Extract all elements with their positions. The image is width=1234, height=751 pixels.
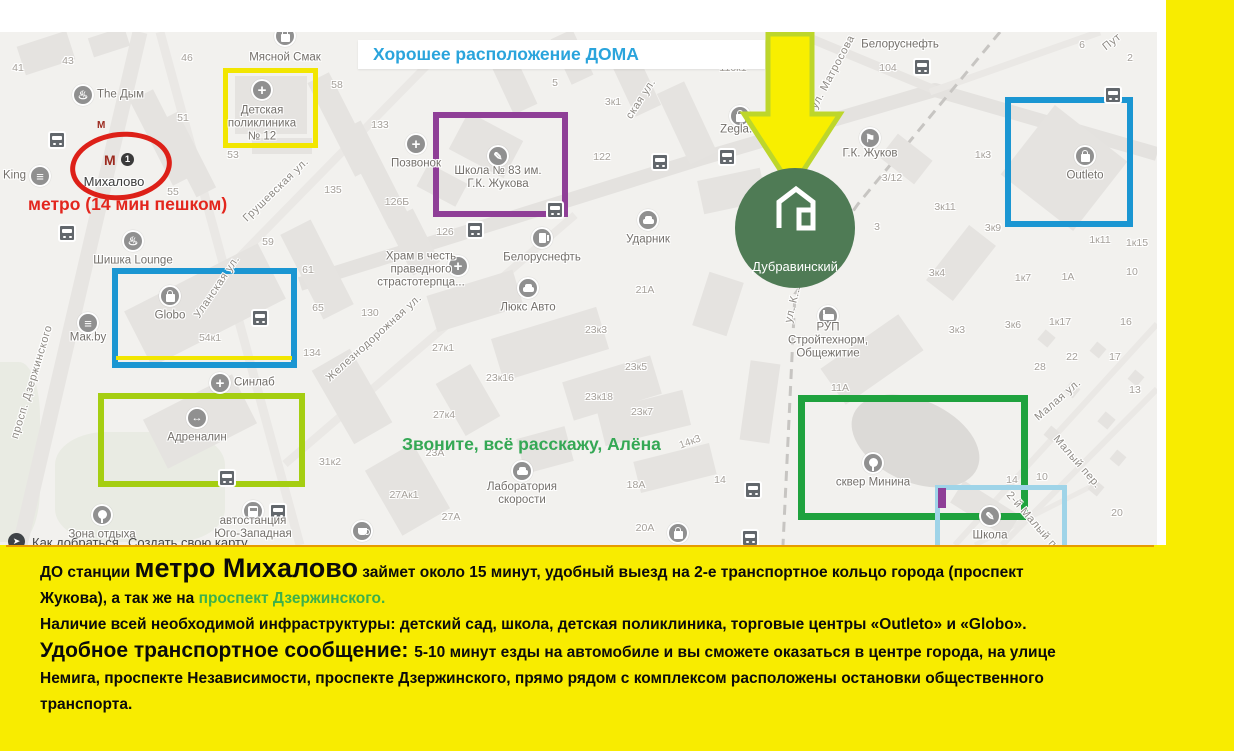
metro-walk-note: метро (14 мин пешком) [28,194,227,215]
house-number: 2 [1127,52,1133,64]
house-number: 23к16 [486,372,514,384]
house-number: 17 [1109,351,1121,363]
header-banner: Хорошее расположение ДОМА [358,40,765,69]
school-poi-icon[interactable]: ✎ [979,505,1001,527]
house-number: 54к1 [199,332,221,344]
p1-prefix: ДО станции [40,564,135,581]
poi-label: Детская поликлиника № 12 [228,105,296,144]
arrows-poi-icon[interactable]: ↔ [186,407,208,429]
bus-stop-icon[interactable] [718,148,736,166]
house-number: 59 [262,236,274,248]
house-number: 18А [627,479,646,491]
description-panel: ДО станции метро Михалово займет около 1… [0,545,1234,751]
right-yellow-band [1166,0,1234,545]
poi-label: Белоруснефть [861,39,939,52]
house-number: 3к1 [605,96,621,108]
poi-label: сквер Минина [836,477,910,490]
p1-green-avenue: проспект Дзержинского. [199,590,386,607]
house-number: 10 [1036,471,1048,483]
real-estate-map-flyer: просп. ДзержинскогоГрушевская ул.Уланска… [0,0,1234,751]
house-number: 104 [879,62,897,74]
house-number: 23к18 [585,391,613,403]
poi-label: Синлаб [234,377,275,390]
poi-label: Школа № 83 им. Г.К. Жукова [454,165,541,191]
house-number: 27к4 [433,409,455,421]
house-number: 27к1 [432,342,454,354]
house-number: 23к5 [625,361,647,373]
poi-label: Globo [155,310,186,323]
burger-poi-icon[interactable]: ≡ [29,165,51,187]
poi-label: РУП Стройтехнорм, Общежитие [788,322,868,361]
route-icon[interactable]: ➤ [8,533,25,545]
house-number: 133 [371,119,389,131]
house-number: 41 [12,62,24,74]
p2-infrastructure: Наличие всей необходимой инфраструктуры:… [40,616,1027,633]
tree-poi-icon[interactable] [862,452,884,474]
house-number: 53 [227,149,239,161]
house-number: 11А [831,382,849,394]
bus-stop-icon[interactable] [546,201,564,219]
house-number: 28 [1034,361,1046,373]
bag-poi-icon[interactable] [1074,145,1096,167]
house-number: 58 [331,79,343,91]
gas-poi-icon[interactable] [531,227,553,249]
poi-label: Outleto [1066,170,1103,183]
bus-stop-icon[interactable] [48,131,66,149]
poi-label: Школа [973,530,1008,543]
house-number: 20 [1111,507,1123,519]
poi-label: Адреналин [167,432,226,445]
create-map-button[interactable]: Создать свою карту [128,535,248,545]
globo-box-inner-yellow-line [116,356,292,360]
bus-stop-icon[interactable] [741,529,759,545]
call-agent-note: Звоните, всё расскажу, Алёна [402,434,661,455]
house-number: 43 [62,55,74,67]
bag-poi-icon[interactable] [667,522,689,544]
poi-label: The Дым [97,89,144,102]
car-poi-icon[interactable] [511,460,533,482]
bag-poi-icon[interactable] [159,285,181,307]
bus-stop-icon[interactable] [913,58,931,76]
highlight-box-globo [112,268,297,368]
house-number: 1к15 [1126,237,1148,249]
house-number: 1к17 [1049,316,1071,328]
bus-stop-icon[interactable] [1104,86,1122,104]
house-number: 1А [1062,271,1075,283]
map-canvas[interactable]: просп. ДзержинскогоГрушевская ул.Уланска… [0,32,1157,545]
house-number: 65 [312,302,324,314]
complex-marker[interactable]: Дубравинский [735,168,855,288]
house-number: 3к3 [949,324,965,336]
house-number: 14 [714,474,726,486]
car-poi-icon[interactable] [517,277,539,299]
med-poi-icon[interactable]: + [405,133,427,155]
dubravinsky-logo-icon [769,184,821,232]
purple-marker [938,488,946,508]
bus-stop-icon[interactable] [651,153,669,171]
med-poi-icon[interactable]: + [209,372,231,394]
house-number: 3 [874,221,880,233]
house-number: 1к7 [1015,272,1031,284]
house-number: 135 [324,184,342,196]
house-number: 1к11 [1089,234,1110,246]
flag-poi-icon[interactable]: ⚑ [859,127,881,149]
house-number: 23к3 [585,324,607,336]
hookah-poi-icon[interactable]: ♨ [72,84,94,106]
bus-stop-icon[interactable] [744,481,762,499]
house-number: 3к9 [985,222,1001,234]
bus-stop-icon[interactable] [58,224,76,242]
poi-label: Г.К. Жуков [842,148,897,161]
house-number: 3к11 [934,201,955,213]
house-number: 5 [552,77,558,89]
poi-label: Лаборатория скорости [487,481,557,507]
bus-stop-icon[interactable] [466,221,484,239]
house-number: 3/12 [882,172,902,184]
house-number: 126 [436,226,454,238]
poi-label: Мясной Смак [249,52,321,65]
car-poi-icon[interactable] [637,209,659,231]
house-number: 22 [1066,351,1078,363]
bus-stop-icon[interactable] [251,309,269,327]
highlight-box-outleto [1005,97,1133,227]
tree-poi-icon[interactable] [91,504,113,526]
school-poi-icon[interactable]: ✎ [487,145,509,167]
p3-heading: Удобное транспортное сообщение: [40,639,414,662]
house-number: 3к6 [1005,319,1021,331]
house-number: 27Ак1 [389,489,418,501]
poi-label: Zegla.B [720,124,760,137]
house-number: 1к3 [975,149,991,161]
panel-top-line [6,545,1154,547]
house-number: 126Б [385,196,409,208]
poi-label: Позвонок [391,158,441,171]
house-number: 27А [442,511,461,523]
p1-metro-big: метро Михалово [135,553,359,583]
description-text: ДО станции метро Михалово займет около 1… [40,555,1168,718]
med-poi-icon[interactable]: + [251,79,273,101]
house-number: 10 [1126,266,1138,278]
house-number: 134 [303,347,321,359]
house-number: 122 [593,151,611,163]
hookah-poi-icon[interactable]: ♨ [122,230,144,252]
poi-label: Белоруснефть [503,252,581,265]
house-number: 6 [1079,39,1085,51]
house-number: 31к2 [319,456,341,468]
cup-poi-icon[interactable] [351,520,373,542]
house-number: 130 [361,307,379,319]
poi-label: Шишка Lounge [93,255,172,268]
poi-label: Мак.by [70,332,106,345]
house-number: 46 [181,52,193,64]
poi-label: Храм в честь праведного страстотерпца... [377,251,465,290]
house-number: 23к7 [631,406,653,418]
house-number: 61 [302,264,314,276]
house-number: 51 [177,112,189,124]
poi-label: King [3,170,26,183]
poi-label: Люкс Авто [500,302,555,315]
bus-stop-icon[interactable] [218,469,236,487]
house-number: 21А [636,284,655,296]
house-number: 3к4 [929,267,945,279]
header-title: Хорошее расположение ДОМА [358,40,765,69]
house-number: 16 [1120,316,1132,328]
metro-entrance-icon[interactable]: М [97,120,105,131]
route-button[interactable]: Как добраться [32,535,119,545]
house-number: 20А [636,522,655,534]
house-number: 13 [1129,384,1141,396]
poi-label: Ударник [626,234,670,247]
house-number: 14 [1006,474,1018,486]
complex-name: Дубравинский [752,259,838,274]
